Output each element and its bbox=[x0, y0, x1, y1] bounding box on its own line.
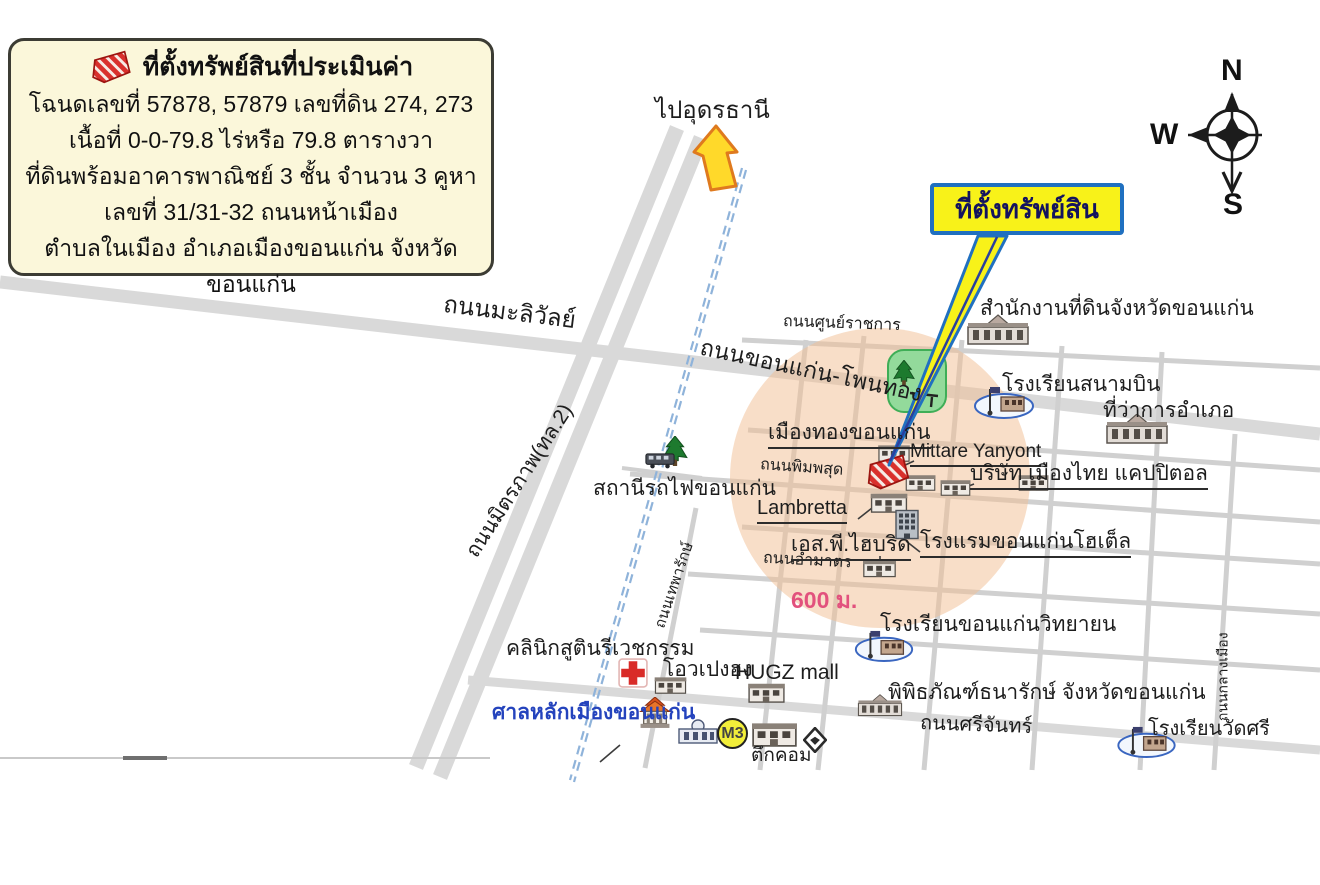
legend-line-address: เลขที่ 31/31-32 ถนนหน้าเมือง bbox=[104, 195, 398, 231]
m3-badge: M3 bbox=[717, 718, 748, 749]
treasury-museum-label: พิพิธภัณฑ์ธนารักษ์ จังหวัดขอนแก่น bbox=[888, 680, 1206, 706]
train-station-icon bbox=[646, 454, 674, 468]
map-canvas: ที่ตั้งทรัพย์สินที่ประเมินค่า โฉนดเลขที่… bbox=[0, 0, 1320, 885]
land-office-label: สำนักงานที่ดินจังหวัดขอนแก่น bbox=[980, 296, 1254, 322]
scan-edge-artifact bbox=[0, 757, 490, 759]
legend-line-area: เนื้อที่ 0-0-79.8 ไร่หรือ 79.8 ตารางวา bbox=[69, 123, 433, 159]
watsri-school-label: โรงเรียนวัดศรี bbox=[1148, 717, 1270, 742]
shophouse-icon bbox=[941, 480, 971, 495]
scan-edge-artifact-dark bbox=[123, 756, 167, 760]
legend-line-deed: โฉนดเลขที่ 57878, 57879 เลขที่ดิน 274, 2… bbox=[29, 87, 473, 123]
sanambin-school-label: โรงเรียนสนามบิน bbox=[1002, 372, 1160, 398]
legend-box: ที่ตั้งทรัพย์สินที่ประเมินค่า โฉนดเลขที่… bbox=[8, 38, 494, 276]
muangthai-capitol-label: บริษัท เมืองไทย แคปปิตอล bbox=[970, 461, 1208, 490]
legend-line-building: ที่ดินพร้อมอาคารพาณิชย์ 3 ชั้น จำนวน 3 ค… bbox=[25, 159, 476, 195]
compass-south-label: S bbox=[1223, 188, 1243, 222]
hugz-mall-building-icon bbox=[748, 684, 785, 702]
shophouse-icon bbox=[906, 475, 936, 490]
legend-title-row: ที่ตั้งทรัพย์สินที่ประเมินค่า bbox=[89, 47, 413, 87]
tuk-com-building-icon bbox=[752, 723, 797, 746]
road-sun-ratchakan-label: ถนนศูนย์ราชการ bbox=[783, 312, 901, 336]
khonkaen-hotel-label: โรงแรมขอนแก่นโฮเต็ล bbox=[920, 529, 1131, 558]
kkw-school-label: โรงเรียนขอนแก่นวิทยายน bbox=[880, 612, 1116, 638]
district-office-label: ที่ว่าการอำเภอ bbox=[1103, 398, 1234, 424]
m3-badge-label: M3 bbox=[721, 725, 743, 743]
property-callout-label: ที่ตั้งทรัพย์สิน bbox=[955, 189, 1099, 230]
clinic-red-cross-icon bbox=[619, 659, 647, 687]
compass-rose-icon bbox=[1188, 92, 1262, 191]
sp-hybrid-label: เอส.พี.ไฮบริด bbox=[791, 532, 911, 561]
city-pillar-label: ศาลหลักเมืองขอนแก่น bbox=[492, 700, 695, 726]
lambretta-label: Lambretta bbox=[757, 496, 847, 524]
to-udon-label: ไปอุดรธานี bbox=[655, 96, 770, 126]
legend-marker-swatch-icon bbox=[89, 50, 133, 84]
compass-north-label: N bbox=[1221, 54, 1243, 88]
distance-600m-label: 600 ม. bbox=[791, 586, 857, 615]
compass-west-label: W bbox=[1150, 118, 1178, 152]
road-srichan-label: ถนนศรีจันทร์ bbox=[920, 711, 1033, 740]
hugz-mall-label: HUGZ mall bbox=[735, 660, 839, 686]
lambretta-building-icon bbox=[871, 494, 908, 512]
tuk-com-label: ตึกคอม bbox=[751, 744, 812, 768]
mueangthong-label: เมืองทองขอนแก่น bbox=[768, 420, 931, 449]
road-klang-mueang-label: ถนนกลางเมือง bbox=[1214, 627, 1232, 727]
legend-line-district: ตำบลในเมือง อำเภอเมืองขอนแก่น จังหวัดขอน… bbox=[15, 231, 487, 303]
railway-station-label: สถานีรถไฟขอนแก่น bbox=[593, 476, 776, 502]
sp-hybrid-building-icon bbox=[863, 560, 896, 577]
legend-title: ที่ตั้งทรัพย์สินที่ประเมินค่า bbox=[143, 47, 413, 87]
property-callout: ที่ตั้งทรัพย์สิน bbox=[930, 183, 1124, 235]
